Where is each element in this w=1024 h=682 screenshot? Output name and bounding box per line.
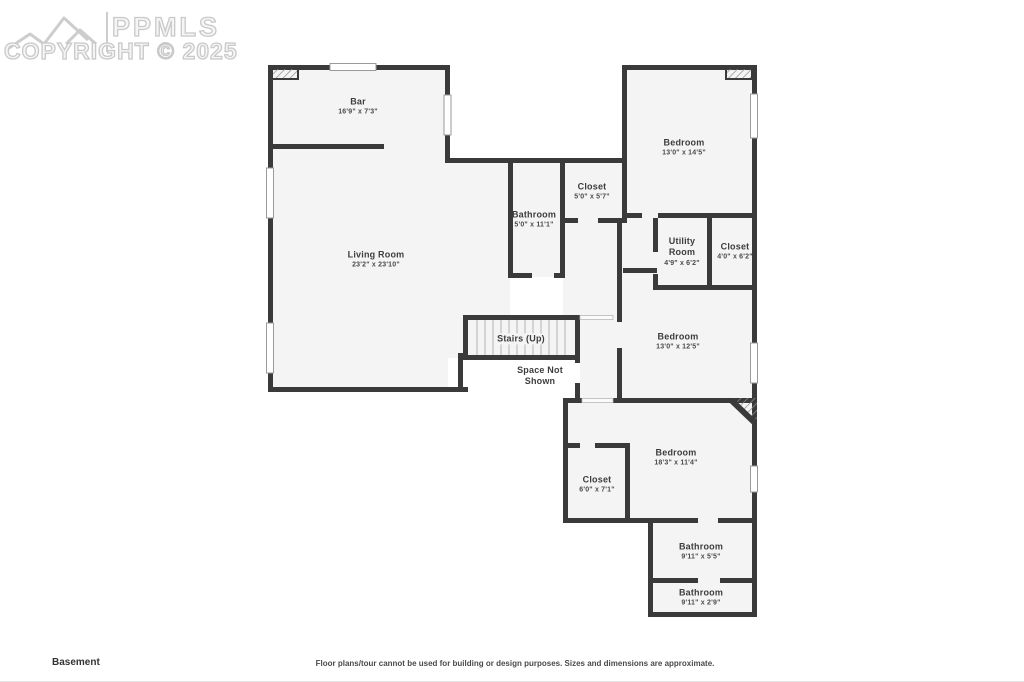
room-label-closet-main: Closet 5'0" x 5'7" xyxy=(574,182,610,203)
room-label-utility-room: Utility Room 4'9" x 6'2" xyxy=(661,236,703,268)
room-label-bedroom-3: Bedroom 18'3" x 11'4" xyxy=(654,448,697,469)
room-label-space-not-shown: Space Not Shown xyxy=(505,365,575,388)
disclaimer-text: Floor plans/tour cannot be used for buil… xyxy=(316,659,715,668)
room-label-bedroom-2: Bedroom 13'0" x 12'5" xyxy=(656,332,700,353)
floorplan-page: PPMLS COPYRIGHT © 2025 Bar 16'9" x 7'3" … xyxy=(0,0,1024,682)
room-label-bathroom-main: Bathroom 5'0" x 11'1" xyxy=(512,210,556,231)
room-label-bar: Bar 16'9" x 7'3" xyxy=(338,97,378,118)
room-label-living-room: Living Room 23'2" x 23'10" xyxy=(348,250,405,271)
room-label-closet-utility: Closet 4'0" x 6'2" xyxy=(713,242,757,263)
room-label-bathroom-lower-1: Bathroom 9'11" x 5'5" xyxy=(679,542,723,563)
room-label-closet-bottom: Closet 6'0" x 7'1" xyxy=(579,475,615,496)
room-label-stairs: Stairs (Up) xyxy=(494,333,548,344)
room-label-bathroom-lower-2: Bathroom 9'11" x 2'9" xyxy=(679,588,723,609)
room-label-bedroom-1: Bedroom 13'0" x 14'5" xyxy=(662,138,706,159)
floor-level-label: Basement xyxy=(52,657,100,668)
